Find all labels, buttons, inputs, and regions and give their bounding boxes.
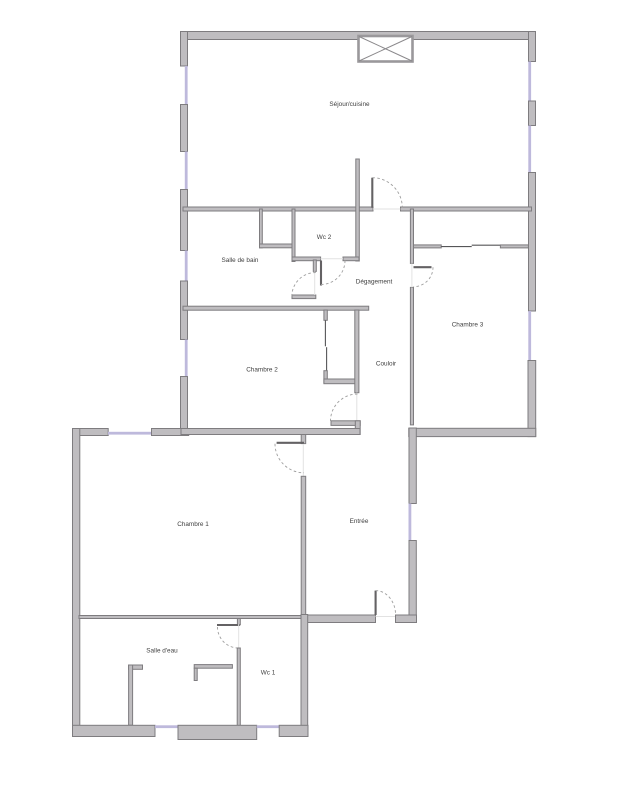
svg-text:Dégagement: Dégagement — [356, 279, 393, 286]
svg-text:Salle de bain: Salle de bain — [222, 257, 259, 264]
svg-text:Chambre 1: Chambre 1 — [177, 521, 209, 528]
svg-text:Chambre 3: Chambre 3 — [452, 322, 484, 329]
svg-text:Entrée: Entrée — [350, 518, 369, 525]
svg-text:Salle d'eau: Salle d'eau — [146, 648, 178, 655]
svg-text:Wc 1: Wc 1 — [261, 670, 276, 677]
svg-text:Couloir: Couloir — [376, 361, 397, 368]
svg-text:Wc 2: Wc 2 — [317, 234, 332, 241]
svg-text:Séjour/cuisine: Séjour/cuisine — [329, 101, 370, 108]
svg-text:Chambre 2: Chambre 2 — [246, 367, 278, 374]
